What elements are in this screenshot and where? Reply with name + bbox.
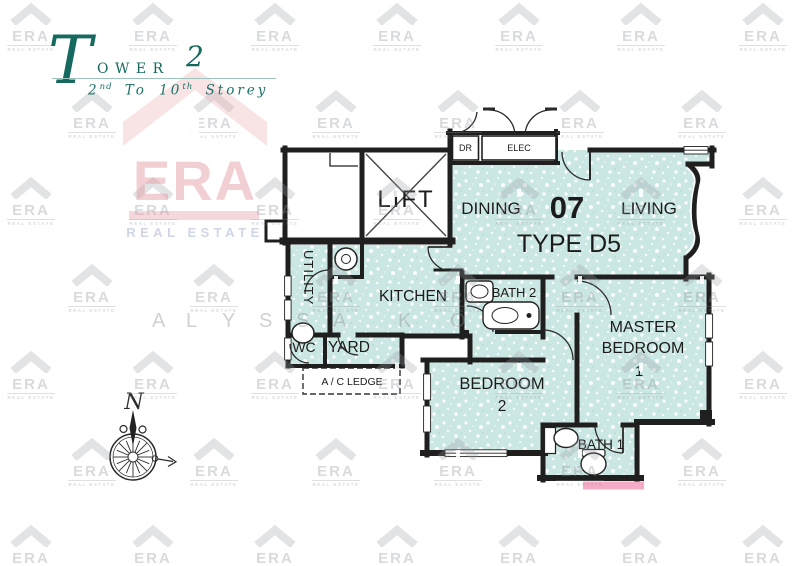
corner-pier [700,410,712,422]
dr-door-arc [454,112,477,133]
bath1-sink [554,429,578,448]
room-label-master-1: MASTER [610,319,677,336]
tower-title-initial: T [48,22,92,99]
room-label-lift: LIFT [377,186,434,213]
room-label-bedroom2-2: 2 [498,398,507,415]
unit-type: TYPE D5 [517,230,621,258]
room-label-bedroom2-1: BEDROOM [459,375,544,393]
title-block: T OWER 2 2nd To 10th Storey [48,30,318,108]
room-label-bath2: BATH 2 [492,285,537,300]
highlight-strip [583,482,644,490]
room-label-kitchen: KITCHEN [379,288,447,305]
title-rule [52,78,276,79]
room-label-bath1: BATH 1 [578,437,624,452]
compass-north-label: N [123,390,144,415]
room-label-ac-ledge: A / C LEDGE [321,376,382,388]
room-label-living: LIVING [621,199,677,218]
storey-subtitle: 2nd To 10th Storey [88,82,268,99]
room-label-master-2: BEDROOM [602,340,685,357]
bath1-toilet [581,453,606,475]
tower-title-number: 2 [186,40,204,73]
tower-title-rest: OWER [97,61,170,77]
compass-rose: N [110,390,176,480]
room-label-wc: WC [292,339,315,355]
room-label-dining: DINING [461,199,521,218]
room-label-dr: DR [459,143,472,153]
room-label-elec: ELEC [507,143,531,153]
unit-number: 07 [550,190,584,225]
room-label-master-3: 1 [635,363,643,380]
room-label-yard: YARD [328,339,370,356]
compass-needle [130,410,137,446]
room-label-utility: UTILITY [301,250,316,305]
